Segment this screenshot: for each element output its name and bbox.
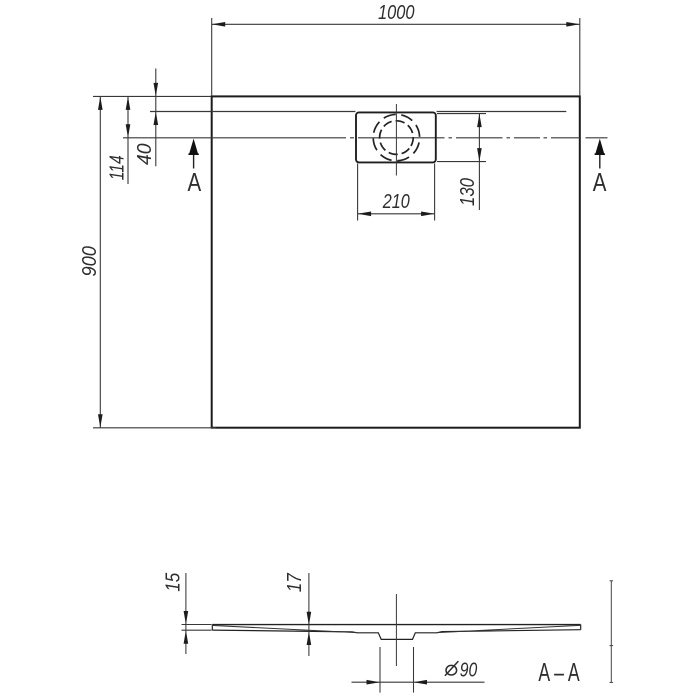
svg-text:15: 15 [163, 572, 185, 592]
svg-text:130: 130 [457, 178, 479, 206]
svg-text:17: 17 [284, 573, 306, 593]
svg-text:A – A: A – A [538, 658, 579, 687]
svg-text:114: 114 [106, 155, 128, 180]
svg-text:A: A [187, 168, 201, 197]
svg-text:1000: 1000 [378, 2, 415, 24]
svg-text:900: 900 [79, 246, 101, 277]
svg-text:40: 40 [134, 144, 156, 166]
svg-text:210: 210 [382, 191, 410, 213]
svg-text:A: A [593, 168, 607, 197]
svg-text:90: 90 [460, 660, 478, 682]
